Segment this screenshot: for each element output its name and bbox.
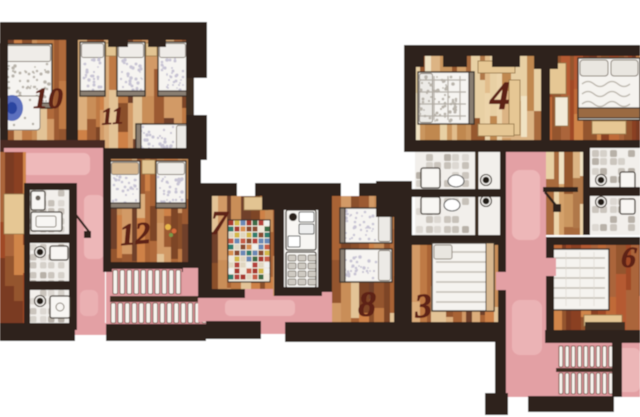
svg-text:6: 6	[620, 240, 638, 274]
svg-text:12: 12	[118, 215, 152, 253]
svg-text:10: 10	[33, 82, 63, 115]
svg-text:7: 7	[211, 205, 230, 242]
svg-text:11: 11	[100, 103, 124, 131]
svg-text:4: 4	[489, 73, 510, 118]
svg-text:3: 3	[413, 287, 434, 325]
svg-text:8: 8	[358, 284, 376, 324]
